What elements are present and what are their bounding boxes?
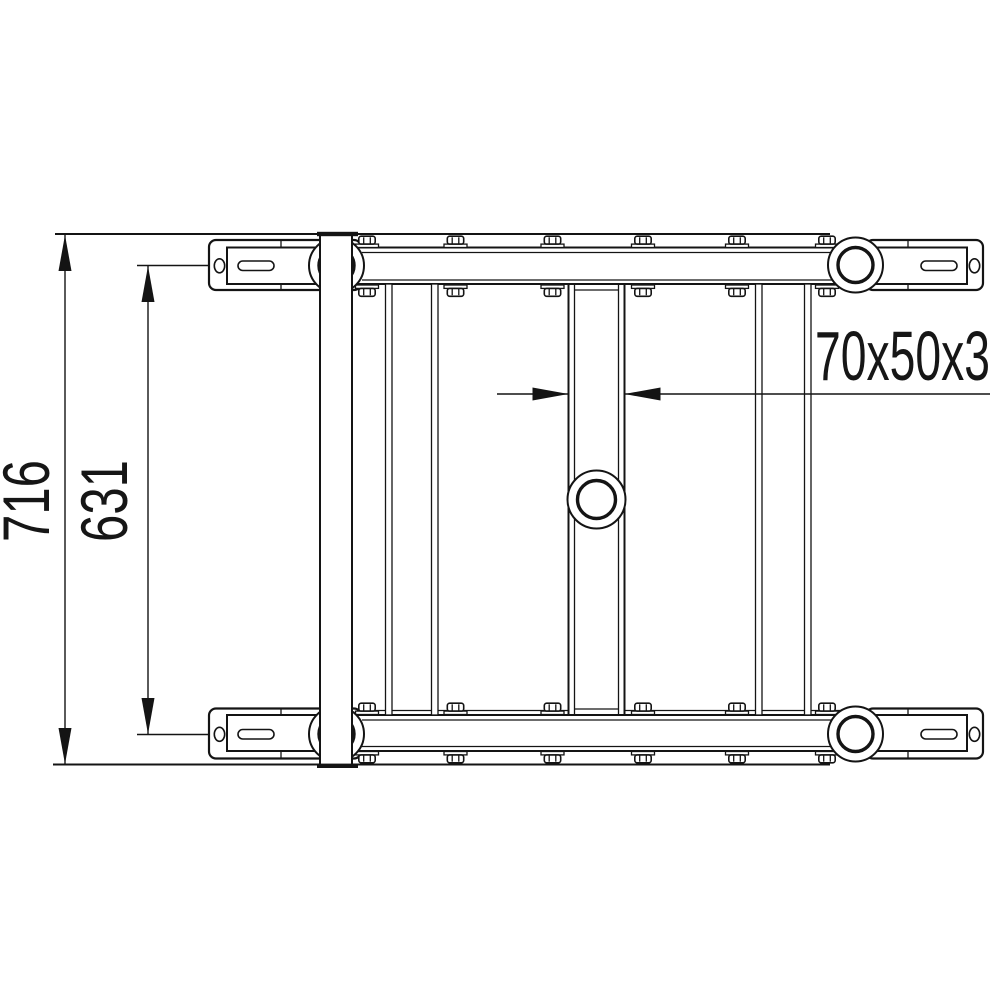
nut — [816, 285, 839, 296]
nut — [632, 703, 655, 714]
callout-arrow-right — [533, 388, 569, 401]
upright-bar-bottom-cap — [317, 764, 358, 768]
dim-631-label: 631 — [67, 460, 141, 542]
dim-arrow-down — [142, 698, 155, 734]
slat-bar — [805, 284, 812, 715]
nut — [726, 285, 749, 296]
nut — [541, 285, 564, 296]
top-left-mounting-slot — [238, 261, 274, 271]
nut — [632, 236, 655, 247]
dim-716-label: 716 — [0, 460, 63, 542]
nut — [444, 752, 467, 763]
center-hole — [568, 471, 626, 529]
nut — [444, 703, 467, 714]
slat-bar — [386, 284, 393, 715]
nut — [632, 752, 655, 763]
top-left-end-hole — [214, 259, 224, 273]
profile-label: 70x50x3 — [815, 317, 990, 395]
top-right-end-hole — [969, 259, 979, 273]
slat-bar — [756, 284, 763, 715]
nut — [632, 285, 655, 296]
slat-bar — [432, 284, 439, 715]
dim-arrow-up — [59, 235, 72, 271]
nut — [726, 703, 749, 714]
pivot-hole-top-right — [828, 238, 883, 293]
technical-drawing-canvas: 716 631 70x50x3 — [0, 0, 1000, 1000]
nut — [356, 752, 379, 763]
upright-bar-outline — [320, 233, 352, 765]
nut — [444, 285, 467, 296]
nut — [726, 236, 749, 247]
callout-arrow-left — [625, 388, 661, 401]
top-right-mounting-slot — [921, 261, 957, 271]
nut — [444, 236, 467, 247]
upright-bar — [317, 232, 358, 768]
drawing-sheet: 716 631 70x50x3 — [0, 0, 1000, 1000]
dim-arrow-down — [59, 728, 72, 764]
nut — [541, 703, 564, 714]
center-hole-inner — [578, 481, 616, 519]
nut — [356, 285, 379, 296]
nut — [356, 703, 379, 714]
upright-bar-top-cap — [317, 232, 358, 236]
bottom-left-mounting-slot — [238, 730, 274, 740]
nut — [816, 703, 839, 714]
nut — [541, 752, 564, 763]
bottom-left-end-hole — [214, 727, 224, 741]
nut — [541, 236, 564, 247]
nut — [356, 236, 379, 247]
dimension-631: 631 — [67, 266, 209, 735]
bottom-right-mounting-slot — [921, 730, 957, 740]
dimension-716: 716 — [0, 235, 72, 764]
bottom-right-end-hole — [969, 727, 979, 741]
dim-arrow-up — [142, 266, 155, 302]
pivot-hole-bottom-right — [828, 707, 883, 762]
nut — [726, 752, 749, 763]
